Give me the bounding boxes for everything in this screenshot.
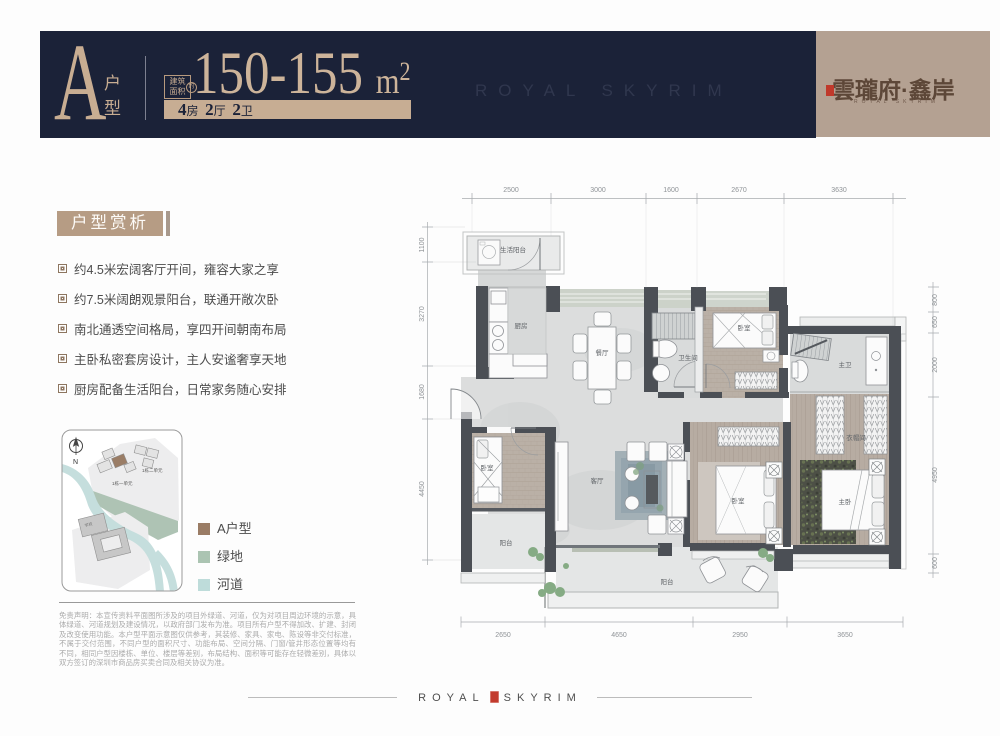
svg-text:餐厅: 餐厅 (596, 348, 610, 357)
svg-text:1100: 1100 (419, 237, 426, 252)
svg-text:2950: 2950 (732, 632, 748, 639)
svg-text:3630: 3630 (831, 187, 847, 194)
svg-text:卫生间: 卫生间 (678, 353, 698, 362)
svg-text:生活阳台: 生活阳台 (500, 245, 526, 254)
svg-text:4950: 4950 (932, 467, 939, 483)
svg-text:4450: 4450 (419, 481, 426, 497)
svg-text:800: 800 (932, 294, 939, 306)
svg-text:2670: 2670 (731, 187, 747, 194)
svg-text:600: 600 (932, 557, 939, 569)
svg-text:卧室: 卧室 (732, 496, 746, 505)
svg-text:1600: 1600 (663, 187, 679, 194)
svg-text:主卫: 主卫 (839, 360, 853, 369)
svg-text:1680: 1680 (419, 384, 426, 400)
svg-text:4650: 4650 (611, 632, 627, 639)
svg-text:阳台: 阳台 (500, 538, 513, 547)
svg-text:主卧: 主卧 (839, 497, 853, 506)
svg-text:2000: 2000 (932, 357, 939, 373)
svg-text:厨房: 厨房 (515, 321, 528, 330)
svg-text:3000: 3000 (590, 187, 606, 194)
svg-text:阳台: 阳台 (661, 577, 674, 586)
svg-text:2500: 2500 (503, 187, 519, 194)
svg-text:客厅: 客厅 (591, 476, 605, 485)
svg-text:3270: 3270 (419, 306, 426, 322)
svg-text:3650: 3650 (837, 632, 853, 639)
svg-text:衣帽间: 衣帽间 (846, 433, 866, 442)
svg-text:2650: 2650 (495, 632, 511, 639)
svg-text:卧室: 卧室 (481, 463, 495, 472)
svg-text:650: 650 (932, 316, 939, 328)
svg-text:卧室: 卧室 (738, 323, 752, 332)
